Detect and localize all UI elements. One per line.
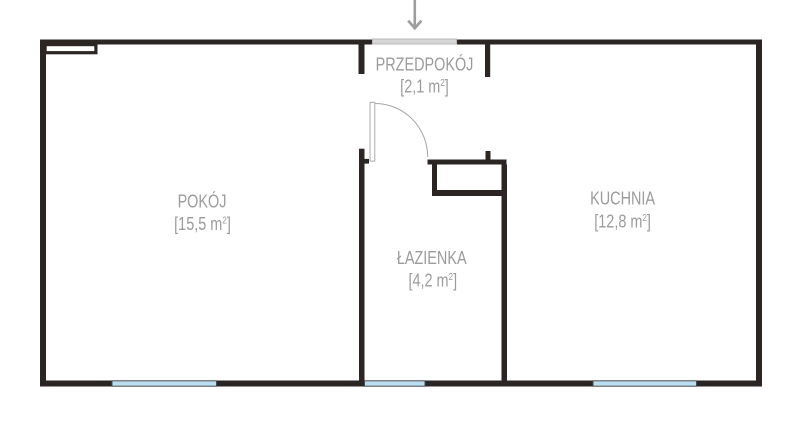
svg-text:PRZEDPOKÓJ: PRZEDPOKÓJ [376, 54, 474, 75]
svg-text:KUCHNIA: KUCHNIA [590, 188, 656, 209]
svg-text:POKÓJ: POKÓJ [178, 191, 227, 212]
svg-text:ŁAZIENKA: ŁAZIENKA [397, 247, 468, 268]
